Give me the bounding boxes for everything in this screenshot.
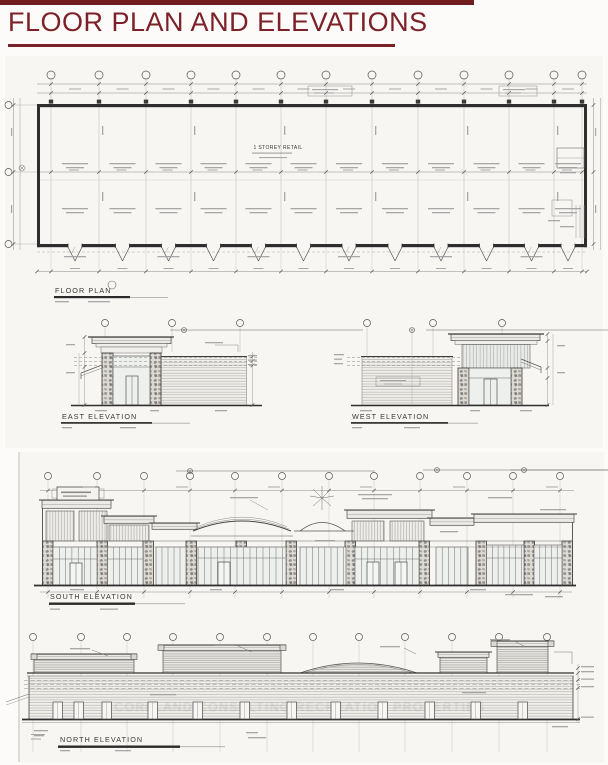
architectural-drawing-canvas: 1 STOREY RETAIL FLOOR PLAN [0,0,608,765]
north-elevation-label-rule [58,746,180,748]
west-elevation-label: WEST ELEVATION [352,412,429,421]
floor-plan-label: FLOOR PLAN [55,286,112,295]
north-elevation-label: NORTH ELEVATION [60,735,143,744]
east-elevation-label: EAST ELEVATION [62,412,137,421]
floor-plan-label-rule [54,296,130,298]
south-elevation-label: SOUTH ELEVATION [50,592,133,601]
page: FLOOR PLAN AND ELEVATIONS [0,0,608,765]
west-elevation-label-rule [351,422,448,424]
south-elevation-label-rule [49,603,135,605]
floor-plan-building-text: 1 STOREY RETAIL [253,145,302,151]
east-elevation-label-rule [61,422,152,424]
